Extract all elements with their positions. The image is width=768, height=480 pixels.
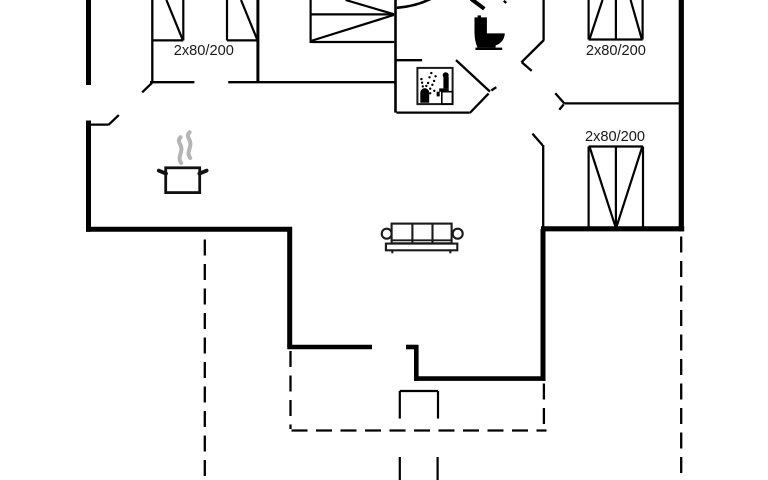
svg-text:2x80/200: 2x80/200 — [174, 43, 234, 59]
svg-text:2x80/200: 2x80/200 — [586, 43, 646, 59]
svg-text:2x80/200: 2x80/200 — [585, 129, 645, 145]
